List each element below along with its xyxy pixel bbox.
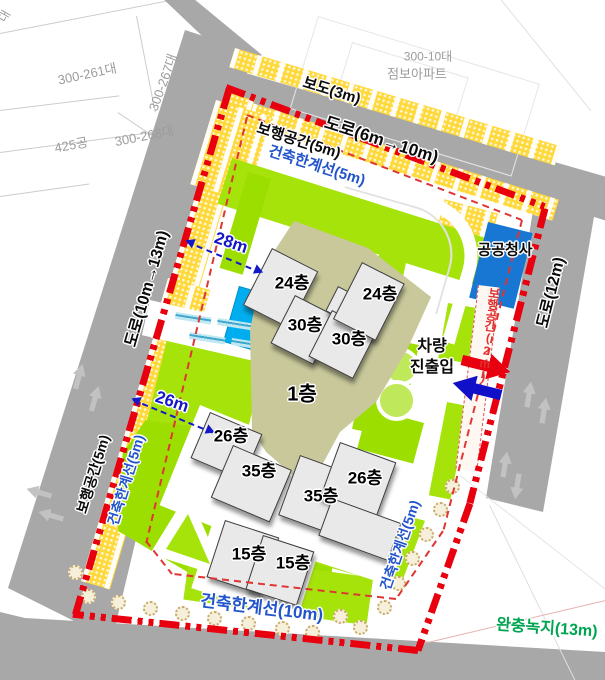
tower-label-15f-b: 15층 (276, 549, 311, 574)
parcel-label-425: 425공 (53, 131, 90, 156)
tree-icon (175, 606, 190, 621)
tree-icon (377, 600, 392, 615)
vehicle-access-line1: 차량 (402, 336, 462, 357)
tree-icon (111, 595, 126, 610)
tree-icon (143, 601, 158, 616)
site-plan-canvas: 대 300-261대 300-267대 300-268대 425공 300-10… (0, 0, 605, 680)
parcel-line (0, 183, 89, 197)
tower-label-24f-a: 24층 (275, 269, 310, 294)
tower-label-30f-a: 30층 (288, 311, 323, 336)
tower-label-35f-e: 35층 (304, 482, 339, 507)
tree-icon (419, 527, 434, 542)
tree-icon (68, 565, 83, 580)
tree-icon (353, 620, 368, 635)
tower-label-15f-a: 15층 (232, 540, 267, 565)
parcel-line (0, 95, 119, 111)
parcel-label-partial: 대 (0, 7, 14, 25)
apartment-name-label: 점보아파트 (387, 64, 447, 83)
apartment-lot-label: 300-10대 (404, 48, 452, 65)
public-building-label: 공공청사 (477, 239, 532, 260)
tower-label-35f-w: 35층 (242, 457, 277, 482)
tower-label-26f-w: 26층 (214, 422, 249, 447)
tower-label-24f-b: 24층 (363, 280, 398, 305)
tree-icon (333, 609, 348, 624)
parcel-line (0, 0, 173, 34)
vehicle-access-line2: 진출입 (402, 357, 462, 378)
vehicle-access-label: 차량 진출입 (402, 336, 462, 378)
tower-label-26f-e: 26층 (348, 464, 383, 489)
parcel-label-300-261: 300-261대 (56, 58, 118, 89)
tower-label-30f-b: 30층 (332, 325, 367, 350)
buffer-label: 완충녹지(13m) (496, 610, 599, 641)
podium-label: 1층 (287, 378, 317, 407)
